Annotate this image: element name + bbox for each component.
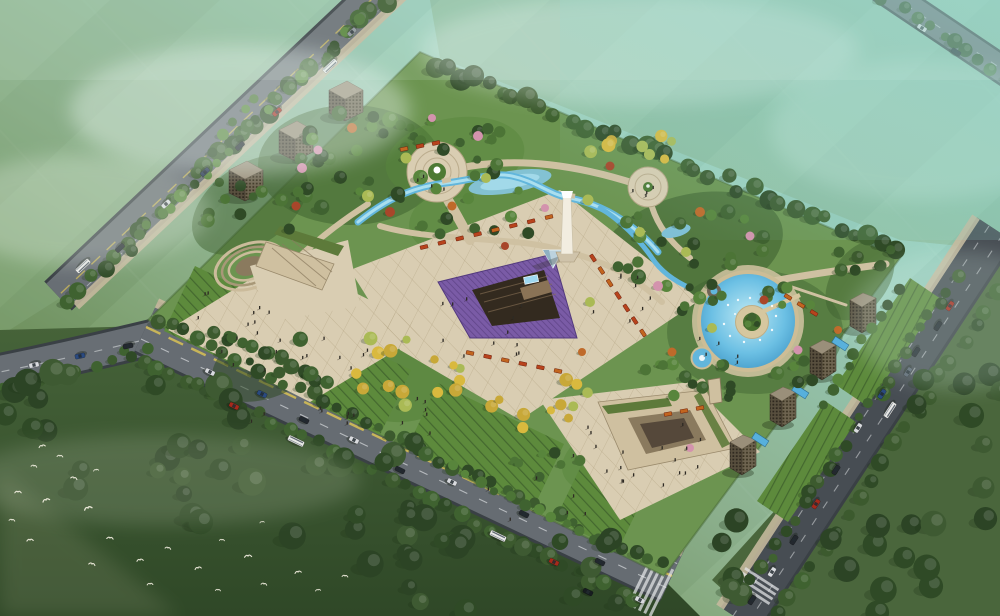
tree xyxy=(220,194,230,204)
tree-highlight xyxy=(876,517,887,528)
person xyxy=(623,479,624,482)
person xyxy=(587,426,588,429)
tree-highlight xyxy=(455,385,461,391)
tree xyxy=(754,321,760,327)
tree-highlight xyxy=(233,355,239,361)
tree-highlight xyxy=(559,536,566,543)
tree-highlight xyxy=(547,550,555,558)
person xyxy=(442,302,443,305)
person xyxy=(521,304,522,307)
tree-highlight xyxy=(805,497,811,503)
tree xyxy=(463,193,474,204)
tree-highlight xyxy=(507,534,514,541)
tree xyxy=(517,422,528,433)
tree-highlight xyxy=(777,607,784,614)
tree-highlight xyxy=(982,480,992,490)
tree-highlight xyxy=(418,488,424,494)
person xyxy=(236,336,237,339)
tree xyxy=(794,346,803,355)
tree xyxy=(555,399,566,410)
tree xyxy=(538,450,546,458)
person xyxy=(431,184,432,187)
tree-highlight xyxy=(797,378,803,384)
tree-highlight xyxy=(894,243,902,251)
person xyxy=(442,339,443,342)
tree xyxy=(487,135,497,145)
person xyxy=(280,339,281,342)
tree-highlight xyxy=(270,419,276,425)
tree xyxy=(804,561,815,572)
tree xyxy=(107,355,117,365)
tree xyxy=(845,362,854,371)
tree xyxy=(855,413,863,421)
person xyxy=(513,316,514,319)
person xyxy=(264,412,265,415)
tree-highlight xyxy=(473,520,480,527)
tree xyxy=(819,400,828,409)
tree xyxy=(668,348,677,357)
person xyxy=(633,473,634,476)
tree-highlight xyxy=(425,448,432,455)
person xyxy=(204,292,205,295)
person xyxy=(620,466,621,469)
tree xyxy=(680,301,690,311)
tree xyxy=(568,401,578,411)
tree xyxy=(249,192,257,200)
tree-highlight xyxy=(902,550,912,560)
tree-highlight xyxy=(844,560,856,572)
tree xyxy=(401,153,412,164)
tree xyxy=(778,301,786,309)
tree-highlight xyxy=(767,287,773,293)
person xyxy=(590,431,591,434)
tree xyxy=(886,245,895,254)
tree xyxy=(461,470,469,478)
person xyxy=(536,476,537,479)
tree xyxy=(495,396,503,404)
tree xyxy=(546,512,557,523)
tree-highlight xyxy=(665,281,671,287)
tree-highlight xyxy=(401,387,407,393)
tree xyxy=(227,332,238,343)
person xyxy=(635,284,636,287)
person xyxy=(642,307,643,310)
person xyxy=(662,446,663,449)
person xyxy=(518,351,519,354)
tree xyxy=(832,374,844,386)
tree xyxy=(396,195,404,203)
tree-highlight xyxy=(299,334,306,341)
tree-highlight xyxy=(684,372,690,378)
person xyxy=(686,447,687,450)
tree-highlight xyxy=(760,561,767,568)
person xyxy=(705,353,706,356)
tree-highlight xyxy=(421,508,433,520)
person xyxy=(353,414,354,417)
person xyxy=(350,366,351,369)
tree xyxy=(448,202,457,211)
tree xyxy=(406,124,414,132)
tree xyxy=(574,526,584,536)
tree xyxy=(707,323,717,333)
person xyxy=(516,352,517,355)
person xyxy=(417,178,418,181)
tree-highlight xyxy=(621,544,627,550)
tree-highlight xyxy=(237,409,248,420)
person xyxy=(699,337,700,340)
person xyxy=(306,354,307,357)
person xyxy=(621,479,622,482)
person xyxy=(320,407,321,410)
person xyxy=(697,465,698,468)
tree xyxy=(843,510,854,521)
tree-highlight xyxy=(383,455,392,464)
tree-highlight xyxy=(442,145,448,151)
tree-highlight xyxy=(931,514,943,526)
tree xyxy=(254,406,266,418)
tree xyxy=(585,297,595,307)
gate-tower xyxy=(708,378,722,404)
tree xyxy=(473,131,483,141)
tree-highlight xyxy=(891,436,899,444)
person xyxy=(323,337,324,340)
tree xyxy=(91,361,103,373)
tree-highlight xyxy=(306,184,312,190)
person xyxy=(221,350,222,353)
tree xyxy=(490,487,498,495)
tree-highlight xyxy=(857,252,863,258)
tree-highlight xyxy=(36,391,45,400)
tree-highlight xyxy=(888,378,894,384)
person xyxy=(253,311,254,314)
tree xyxy=(686,283,694,291)
tree-highlight xyxy=(406,509,415,518)
tree xyxy=(541,204,549,212)
tree-highlight xyxy=(915,397,924,406)
tree xyxy=(449,361,457,369)
person xyxy=(247,323,248,326)
person xyxy=(679,471,680,474)
tree-highlight xyxy=(878,456,886,464)
tree-highlight xyxy=(339,173,345,179)
person xyxy=(737,355,738,358)
tree-highlight xyxy=(510,212,515,217)
tree xyxy=(456,138,465,147)
tree-highlight xyxy=(264,348,270,354)
tree xyxy=(557,460,566,469)
tree-highlight xyxy=(229,391,240,402)
tree xyxy=(668,390,679,401)
tree-highlight xyxy=(397,189,404,196)
rendering-canvas xyxy=(0,0,1000,616)
tree xyxy=(514,186,522,194)
tree xyxy=(781,282,792,293)
tree xyxy=(658,360,668,370)
person xyxy=(339,356,340,359)
tree xyxy=(716,291,726,301)
tree xyxy=(351,368,362,379)
tree-highlight xyxy=(66,366,76,376)
tree xyxy=(494,126,505,137)
tree xyxy=(653,281,663,291)
tree-highlight xyxy=(251,341,257,347)
tree xyxy=(571,379,582,390)
person xyxy=(650,296,651,299)
tree-highlight xyxy=(408,581,415,588)
tree-highlight xyxy=(419,172,426,179)
tree-highlight xyxy=(437,458,442,463)
tree xyxy=(384,430,395,441)
tree-highlight xyxy=(388,382,393,387)
tree xyxy=(417,220,428,231)
tree-highlight xyxy=(801,575,809,583)
tree-highlight xyxy=(261,187,267,193)
tree xyxy=(798,355,809,366)
tree-highlight xyxy=(31,420,41,430)
tree xyxy=(578,348,586,356)
tree-highlight xyxy=(776,368,782,374)
tree-highlight xyxy=(213,328,219,334)
tree-highlight xyxy=(672,360,678,366)
tree xyxy=(564,414,573,423)
tree-highlight xyxy=(172,319,178,325)
tree xyxy=(313,434,325,446)
tree-highlight xyxy=(730,259,736,265)
person xyxy=(363,353,364,356)
tree xyxy=(863,398,873,408)
tree xyxy=(847,348,859,360)
person xyxy=(585,512,586,515)
person xyxy=(606,469,607,472)
tree-highlight xyxy=(309,369,315,375)
person xyxy=(269,311,270,314)
tree xyxy=(473,156,481,164)
tree-highlight xyxy=(516,492,523,499)
tree-highlight xyxy=(430,493,438,501)
tree xyxy=(632,256,643,267)
tree xyxy=(332,403,342,413)
tree-highlight xyxy=(461,508,468,515)
tree-highlight xyxy=(522,410,528,416)
tree-highlight xyxy=(217,376,229,388)
tree-highlight xyxy=(157,317,164,324)
person xyxy=(663,483,664,486)
person xyxy=(259,306,260,309)
person xyxy=(573,454,574,457)
person xyxy=(516,343,517,346)
person xyxy=(347,421,348,424)
tree xyxy=(642,553,653,564)
tree-highlight xyxy=(412,435,421,444)
tree xyxy=(549,447,560,458)
tree xyxy=(506,491,516,501)
tree xyxy=(563,519,571,527)
tree xyxy=(206,339,218,351)
person xyxy=(254,320,255,323)
tree xyxy=(574,455,585,466)
tree-highlight xyxy=(774,539,780,545)
tree-highlight xyxy=(290,424,296,430)
tree xyxy=(657,556,669,568)
tree-highlight xyxy=(731,570,741,580)
tree-highlight xyxy=(409,551,419,561)
tree-highlight xyxy=(816,477,822,483)
person xyxy=(347,416,348,419)
tree-highlight xyxy=(928,393,934,399)
tree xyxy=(292,202,301,211)
tree-highlight xyxy=(464,602,474,612)
tree-highlight xyxy=(982,438,990,446)
tree-highlight xyxy=(734,512,745,523)
tree xyxy=(293,187,304,198)
tree xyxy=(760,296,769,305)
tree-highlight xyxy=(720,535,729,544)
tree-highlight xyxy=(320,202,327,209)
person xyxy=(208,291,209,294)
tree-highlight xyxy=(701,383,707,389)
tree-highlight xyxy=(834,449,840,455)
tree xyxy=(246,357,254,365)
person xyxy=(637,276,638,279)
person xyxy=(685,471,686,474)
person xyxy=(682,423,683,426)
person xyxy=(493,341,494,344)
tree-highlight xyxy=(496,160,502,166)
tree xyxy=(850,265,861,276)
tree-highlight xyxy=(419,595,427,603)
tree-highlight xyxy=(368,554,380,566)
person xyxy=(629,319,630,322)
tree-highlight xyxy=(155,363,163,371)
tree-highlight xyxy=(699,293,705,299)
tree xyxy=(400,479,411,490)
person xyxy=(488,487,489,490)
tree xyxy=(514,459,523,468)
tree xyxy=(297,429,307,439)
tree xyxy=(482,123,493,134)
tree xyxy=(726,387,736,397)
tree-highlight xyxy=(693,239,699,245)
tree-highlight xyxy=(44,422,54,432)
person xyxy=(429,431,430,434)
tree xyxy=(476,476,488,488)
person xyxy=(443,187,444,190)
tree xyxy=(126,351,137,362)
tree xyxy=(806,374,818,386)
tree-highlight xyxy=(322,396,329,403)
tree xyxy=(534,504,545,515)
tree-highlight xyxy=(537,101,544,108)
person xyxy=(321,409,322,412)
tree xyxy=(364,176,374,186)
person xyxy=(233,363,234,366)
tree-highlight xyxy=(367,192,372,197)
tree xyxy=(481,173,491,183)
person xyxy=(425,408,426,411)
person xyxy=(452,302,453,305)
tree xyxy=(432,387,443,398)
tree xyxy=(681,247,691,257)
tree xyxy=(278,380,288,390)
tree-highlight xyxy=(76,285,84,293)
tree-highlight xyxy=(444,500,450,506)
tree-highlight xyxy=(860,492,867,499)
tree-highlight xyxy=(440,535,447,542)
tree-highlight xyxy=(829,531,839,541)
tree-highlight xyxy=(197,379,203,385)
person xyxy=(463,354,464,357)
tree-highlight xyxy=(355,508,363,516)
tree-highlight xyxy=(144,357,151,364)
tree xyxy=(519,499,531,511)
tree xyxy=(142,343,154,355)
person xyxy=(675,458,676,461)
person xyxy=(302,356,303,359)
tree-highlight xyxy=(602,577,609,584)
tree xyxy=(748,313,757,322)
tree-highlight xyxy=(196,333,203,340)
tree-highlight xyxy=(604,536,613,545)
tree xyxy=(834,247,845,258)
tree-highlight xyxy=(342,450,352,460)
person xyxy=(264,368,265,371)
tree-highlight xyxy=(167,369,173,375)
tree xyxy=(470,170,481,181)
tree-highlight xyxy=(365,419,370,424)
person xyxy=(593,310,594,313)
person xyxy=(466,297,467,300)
tree xyxy=(745,321,752,328)
tree xyxy=(215,178,224,187)
aerial-park-rendering: Bird's-eye rendering of an urban park ma… xyxy=(0,0,1000,616)
person xyxy=(198,316,199,319)
tree-highlight xyxy=(559,508,566,515)
person xyxy=(622,450,623,453)
tree-highlight xyxy=(615,597,623,605)
person xyxy=(620,275,621,278)
person xyxy=(426,413,427,416)
tree-highlight xyxy=(785,591,793,599)
tree-highlight xyxy=(390,346,396,352)
tree-highlight xyxy=(182,324,188,330)
person xyxy=(425,400,426,403)
tree xyxy=(840,440,852,452)
tree xyxy=(769,554,778,563)
tree xyxy=(435,228,446,239)
tree xyxy=(582,387,593,398)
tree-highlight xyxy=(636,547,643,554)
person xyxy=(348,412,349,415)
tree xyxy=(448,460,458,470)
person xyxy=(257,331,258,334)
tree-highlight xyxy=(281,351,287,357)
tree-highlight xyxy=(881,580,893,592)
tree xyxy=(284,223,295,234)
tree xyxy=(689,259,699,269)
tree-highlight xyxy=(290,526,302,538)
tree xyxy=(402,336,410,344)
person xyxy=(276,350,277,353)
tree-highlight xyxy=(154,378,163,387)
person xyxy=(251,420,252,423)
tree xyxy=(273,367,285,379)
tree xyxy=(430,355,438,363)
tree xyxy=(501,242,509,250)
tree-highlight xyxy=(969,406,980,417)
tree-highlight xyxy=(4,406,14,416)
tree xyxy=(374,423,383,432)
person xyxy=(573,494,574,497)
